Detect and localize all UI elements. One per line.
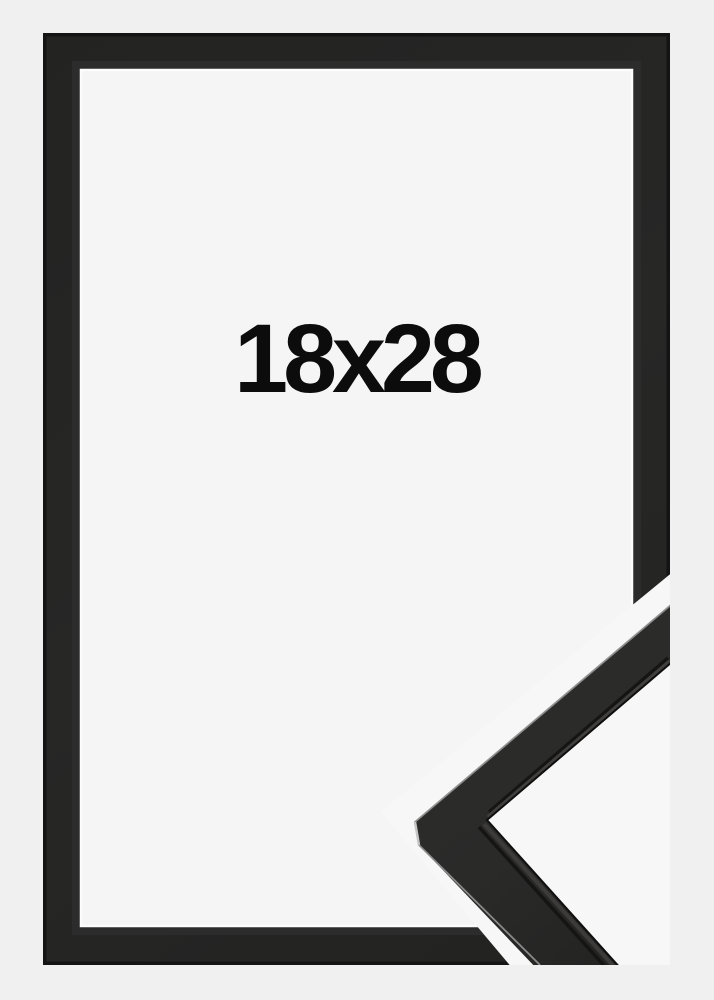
size-label: 18x28 (81, 310, 632, 407)
product-image: 18x28 (0, 0, 714, 1000)
picture-frame-graphic (0, 0, 714, 1000)
